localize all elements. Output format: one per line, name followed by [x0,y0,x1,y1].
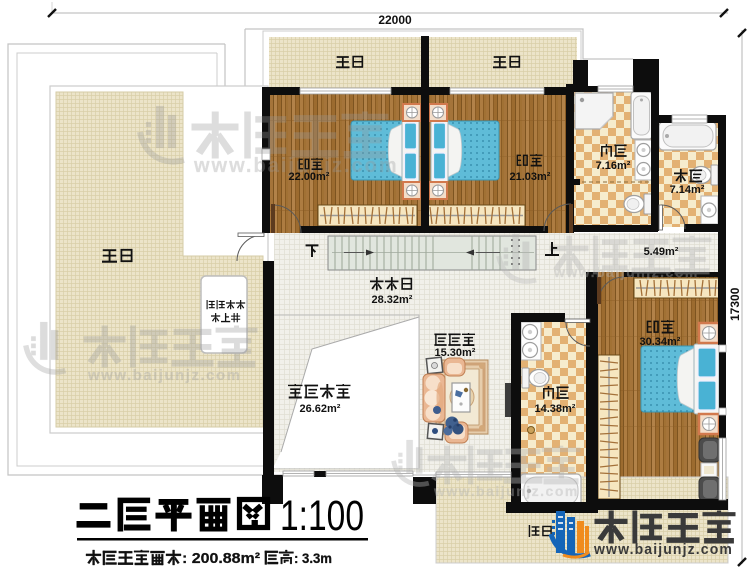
svg-text:17300: 17300 [728,287,742,321]
svg-text:26.62m²: 26.62m² [300,403,341,415]
svg-text:28.32m²: 28.32m² [372,294,413,306]
svg-text:14.38m²: 14.38m² [535,403,576,415]
svg-text:7.16m²: 7.16m² [596,160,631,172]
svg-text:7.14m²: 7.14m² [670,184,705,196]
svg-text:22000: 22000 [378,13,412,27]
svg-text:21.03m²: 21.03m² [510,171,551,183]
svg-text:www.baijunjz.com: www.baijunjz.com [433,483,579,499]
svg-text:www.baijunjz.com: www.baijunjz.com [553,264,699,280]
svg-text:www.baijunjz.com: www.baijunjz.com [593,541,733,558]
svg-text:: 3.3m: : 3.3m [294,550,332,566]
svg-text:www.baijunjz.com: www.baijunjz.com [87,367,241,384]
svg-text:: 200.88m²: : 200.88m² [182,550,260,567]
svg-text:1:100: 1:100 [280,492,364,540]
svg-text:15.30m²: 15.30m² [435,347,476,359]
svg-text:5.49m²: 5.49m² [644,246,679,258]
svg-text:30.34m²: 30.34m² [640,336,681,348]
svg-text:22.00m²: 22.00m² [289,171,330,183]
